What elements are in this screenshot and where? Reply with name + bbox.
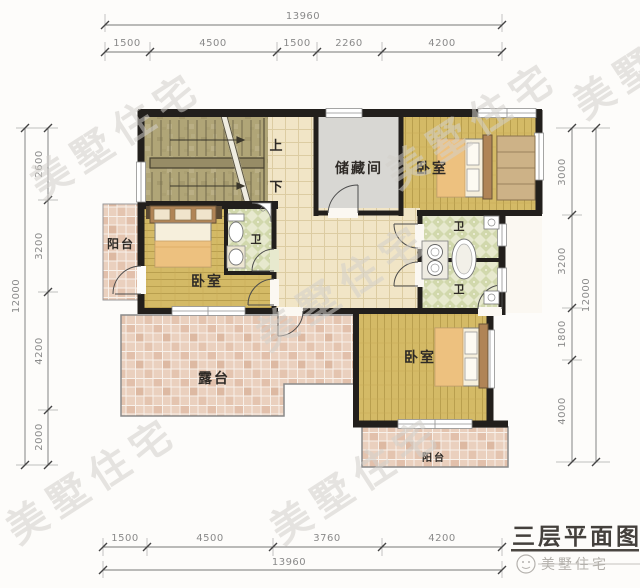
watermark-text: 美墅住宅 — [262, 408, 451, 553]
corner-sink-lower-icon — [484, 291, 499, 304]
stair-label-up: 上 — [269, 139, 284, 154]
room-label-bedroom-left: 卧室 — [191, 273, 223, 290]
bed-left-icon — [146, 206, 222, 267]
stair-landing-rail — [150, 158, 264, 168]
plan-title: 三层平面图 — [512, 523, 640, 550]
brand-logo-icon — [517, 555, 535, 573]
title-underline — [511, 549, 639, 552]
dimension-chain-top: 13960 1500 4500 1500 2260 4200 — [101, 11, 506, 61]
room-label-storage: 储藏间 — [334, 160, 383, 177]
room-label-bath-lower: 卫 — [454, 283, 467, 296]
room-label-bath-left: 卫 — [251, 233, 264, 246]
dim-left-seg-3: 4200 — [34, 337, 45, 364]
dim-bottom-seg-2: 4500 — [196, 533, 223, 544]
dim-right-seg-3: 1800 — [557, 320, 568, 347]
dim-bottom-total: 13960 — [272, 557, 306, 568]
room-label-terrace: 露台 — [198, 370, 230, 387]
dim-right-seg-1: 3000 — [557, 158, 568, 185]
room-label-balcony-left: 阳台 — [107, 236, 135, 251]
brand-text: 美墅住宅 — [541, 557, 609, 573]
dim-top-seg-1: 1500 — [113, 38, 140, 49]
dim-left-seg-4: 2000 — [34, 423, 45, 450]
toilet-icon — [228, 214, 244, 221]
title-block: 三层平面图 美墅住宅 — [511, 523, 640, 573]
dim-right-seg-2: 3200 — [557, 247, 568, 274]
corner-sink-upper-icon — [484, 216, 499, 229]
room-label-bedroom-bottom: 卧室 — [404, 349, 436, 366]
dim-right-total: 12000 — [581, 278, 592, 312]
floor-plan-page: 13960 1500 4500 1500 2260 4200 1500 4500… — [0, 0, 640, 588]
dim-top-seg-5: 4200 — [428, 38, 455, 49]
watermark-text: 美墅住宅 — [565, 0, 640, 128]
dim-top-seg-2: 4500 — [199, 38, 226, 49]
dim-top-seg-3: 1500 — [283, 38, 310, 49]
dim-bottom-seg-3: 3760 — [313, 533, 340, 544]
dim-left-total: 12000 — [11, 279, 22, 313]
dim-top-total: 13960 — [286, 11, 320, 22]
floor-plan-svg: 13960 1500 4500 1500 2260 4200 1500 4500… — [0, 0, 640, 588]
watermarks: 美墅住宅 美墅住宅 美墅住宅 美墅住宅 美墅住宅 美墅住宅 — [0, 0, 640, 553]
room-balcony-left — [103, 204, 141, 300]
watermark-text: 美墅住宅 — [0, 408, 188, 553]
stair-label-down: 下 — [269, 180, 284, 195]
dimension-chain-right: 3000 3200 1800 4000 12000 — [556, 124, 610, 466]
dim-top-seg-4: 2260 — [335, 38, 362, 49]
bed-bottom-icon — [435, 324, 488, 388]
dim-bottom-seg-1: 1500 — [111, 533, 138, 544]
room-label-bath-upper: 卫 — [454, 220, 467, 233]
dim-right-seg-4: 4000 — [557, 397, 568, 424]
dim-bottom-seg-4: 4200 — [428, 533, 455, 544]
dim-left-seg-2: 3200 — [34, 232, 45, 259]
